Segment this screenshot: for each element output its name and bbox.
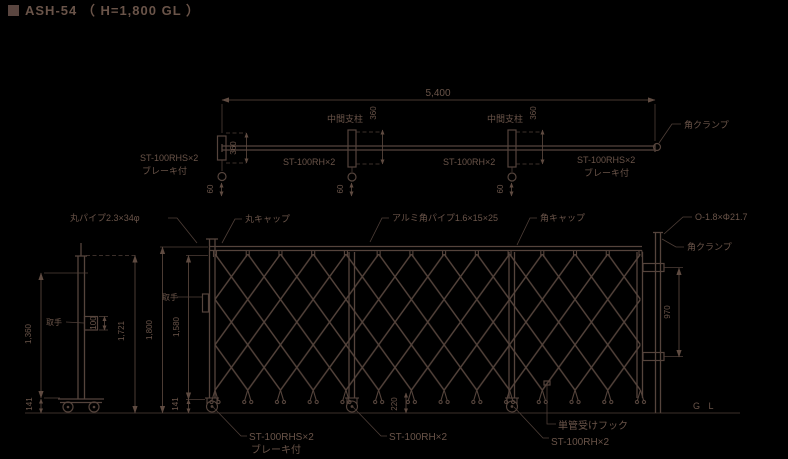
gate-drawing: ASH-54 （ H=1,800 GL ） 5,400 360 60 bbox=[0, 0, 788, 459]
label-end-caster-note-right: ブレーキ付 bbox=[584, 167, 629, 178]
side-caster bbox=[58, 399, 104, 412]
label-ground: G L bbox=[693, 401, 717, 411]
label-span-1: ST-100RH×2 bbox=[283, 157, 335, 167]
elev-handle-icon bbox=[203, 294, 209, 312]
dim-post-depth-mid1: 360 bbox=[369, 106, 378, 120]
plan-view: 5,400 360 60 中間支柱 bbox=[140, 88, 729, 196]
label-caster-brake-note: ブレーキ付 bbox=[251, 443, 301, 456]
dim-caster-height-side: 141 bbox=[25, 397, 34, 411]
label-handle-side: 取手 bbox=[46, 317, 62, 327]
label-mid-post-1: 中間支柱 bbox=[327, 113, 363, 124]
drawing-sheet: ASH-54 （ H=1,800 GL ） 5,400 360 60 bbox=[0, 0, 788, 459]
label-caster-mid-1: ST-100RH×2 bbox=[389, 432, 448, 443]
label-square-cap: 角キャップ bbox=[540, 212, 585, 223]
elevation-view: 970 1,800 1,580 141 220 取手 丸パイプ2.3×34φ 丸… bbox=[25, 212, 747, 456]
plan-caster-left-icon bbox=[218, 173, 226, 181]
label-mid-post-2: 中間支柱 bbox=[487, 113, 523, 124]
dim-frame-height-side: 1,721 bbox=[117, 320, 126, 341]
dim-caster-offset-left: 60 bbox=[206, 184, 215, 193]
dim-overall-width: 5,400 bbox=[425, 88, 450, 99]
dim-caster-offset-mid1: 60 bbox=[336, 184, 345, 193]
label-round-pipe: 丸パイプ2.3×34φ bbox=[70, 212, 140, 223]
plan-caster-mid2-icon bbox=[508, 173, 516, 181]
top-pipe bbox=[209, 247, 642, 251]
label-caster-mid-2: ST-100RH×2 bbox=[551, 437, 610, 448]
plan-gate-bar bbox=[222, 144, 655, 152]
label-handle-elev: 取手 bbox=[162, 292, 178, 302]
receive-pipe bbox=[643, 233, 664, 414]
dim-caster-height-elev: 141 bbox=[171, 397, 180, 411]
dim-caster-offset-mid2: 60 bbox=[496, 184, 505, 193]
lattice bbox=[215, 254, 641, 390]
title-block: ASH-54 （ H=1,800 GL ） bbox=[8, 3, 200, 18]
dim-post-depth-left: 360 bbox=[229, 141, 238, 155]
plan-caster-mid1-icon bbox=[348, 173, 356, 181]
plan-left-post: 360 60 bbox=[206, 133, 247, 196]
dim-hook-spacing: 970 bbox=[663, 305, 672, 319]
label-end-caster-left: ST-100RHS×2 bbox=[140, 153, 198, 163]
plan-clamp-label: 角クランプ bbox=[684, 119, 729, 130]
label-round-cap: 丸キャップ bbox=[245, 213, 290, 224]
label-end-caster-note-left: ブレーキ付 bbox=[142, 165, 187, 176]
label-square-clamp: 角クランプ bbox=[687, 241, 732, 252]
dim-frame-height: 1,580 bbox=[172, 316, 181, 337]
label-alumi-square-pipe: アルミ角パイプ1.6×15×25 bbox=[392, 212, 498, 223]
dim-panel-height: 1,360 bbox=[24, 323, 33, 344]
label-receive-pipe: O-1.8×Φ21.7 bbox=[695, 212, 747, 222]
plan-mid-post-1: 中間支柱 360 60 bbox=[327, 106, 383, 196]
dim-total-height: 1,800 bbox=[145, 319, 154, 340]
label-span-2: ST-100RH×2 bbox=[443, 157, 495, 167]
dim-post-depth-mid2: 360 bbox=[529, 106, 538, 120]
dim-caster-pitch: 220 bbox=[390, 397, 399, 411]
plan-mid-post-2: 中間支柱 360 60 bbox=[487, 106, 543, 196]
label-caster-brake: ST-100RHS×2 bbox=[249, 432, 314, 443]
side-view: 1,360 141 1,721 100 取手 bbox=[24, 243, 138, 413]
label-end-caster-right: ST-100RHS×2 bbox=[577, 155, 635, 165]
page-title: ASH-54 （ H=1,800 GL ） bbox=[25, 3, 200, 18]
label-pipe-hook: 単管受けフック bbox=[558, 419, 628, 432]
dim-handle-size: 100 bbox=[89, 316, 98, 330]
title-square-icon bbox=[8, 5, 19, 16]
